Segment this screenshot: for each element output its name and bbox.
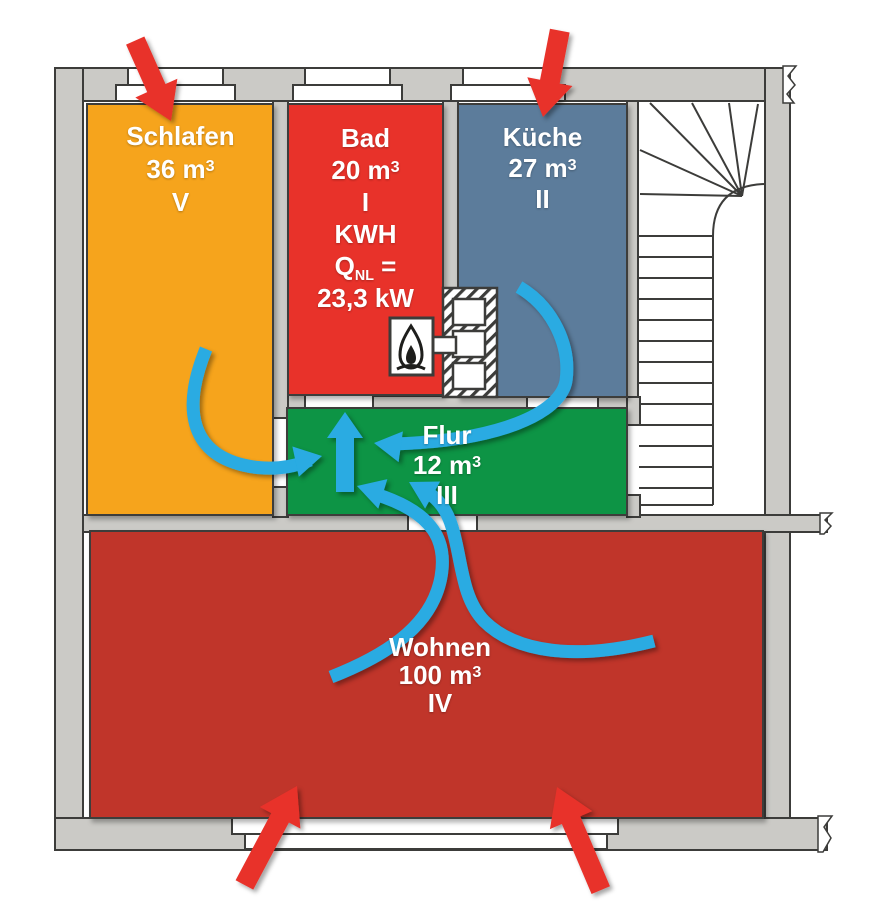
room-name: Bad	[288, 122, 443, 154]
wall-schlafen-bad	[273, 101, 288, 418]
room-name: Wohnen	[290, 633, 590, 661]
label-flur: Flur 12 m3 III	[287, 420, 607, 510]
wall-mid-right	[477, 515, 827, 532]
label-wohnen: Wohnen 100 m3 IV	[290, 633, 590, 717]
wall-mid-left	[83, 515, 408, 532]
room-name: Küche	[458, 122, 627, 153]
room-volume: 100 m3	[290, 661, 590, 689]
room-volume: 20 m3	[288, 154, 443, 186]
winder-staircase-icon	[639, 103, 764, 505]
wall-kueche-stairwell	[627, 101, 638, 397]
entrance-door-jamb-top	[627, 397, 640, 425]
room-numeral: IV	[290, 689, 590, 717]
heater-label: KWH	[288, 218, 443, 250]
wall-bad-kueche	[443, 101, 458, 291]
entrance-door-jamb-bottom	[627, 495, 640, 517]
heat-load-symbol: QNL =	[288, 250, 443, 282]
label-kueche: Küche 27 m3 II	[458, 122, 627, 215]
wall-schlafen-flur-jamb	[273, 487, 288, 517]
wall-break-top-right	[783, 66, 796, 103]
room-name: Flur	[287, 420, 607, 450]
room-name: Schlafen	[88, 120, 273, 153]
room-volume: 12 m3	[287, 450, 607, 480]
room-numeral: III	[287, 480, 607, 510]
wall-left	[55, 68, 83, 850]
room-numeral: I	[288, 186, 443, 218]
window-bad-inner	[293, 85, 402, 101]
window-bad-outer	[305, 68, 390, 85]
room-numeral: V	[88, 186, 273, 219]
floor-plan: Schlafen 36 m3 V Bad 20 m3 I KWH QNL = 2…	[0, 0, 872, 905]
room-volume: 36 m3	[88, 153, 273, 186]
window-wohnen-outer	[245, 834, 607, 849]
gas-heater-kwh	[390, 318, 433, 375]
label-schlafen: Schlafen 36 m3 V	[88, 120, 273, 219]
wall-right	[765, 68, 790, 850]
heat-load-value: 23,3 kW	[288, 282, 443, 314]
room-numeral: II	[458, 184, 627, 215]
wall-break-bottom-right	[818, 816, 832, 852]
wall-break-mid-right	[820, 513, 832, 534]
room-volume: 27 m3	[458, 153, 627, 184]
label-bad: Bad 20 m3 I KWH QNL = 23,3 kW	[288, 122, 443, 314]
